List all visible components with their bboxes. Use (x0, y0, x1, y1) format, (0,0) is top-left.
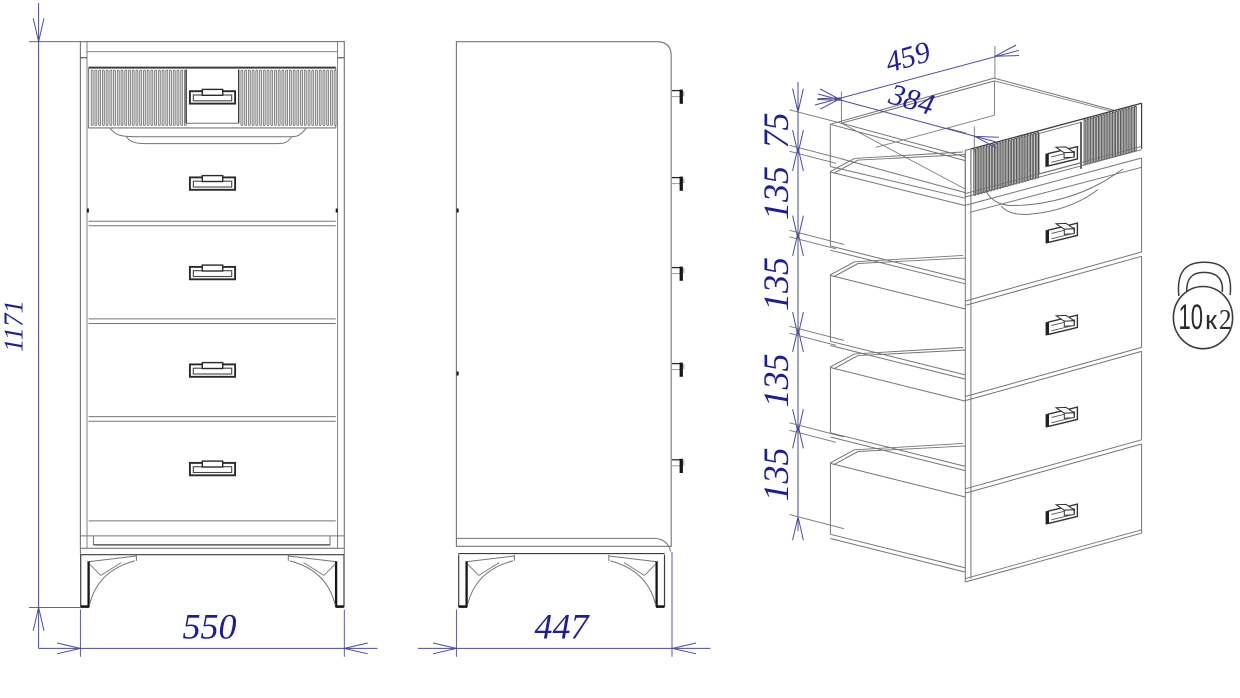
svg-text:135: 135 (756, 448, 796, 502)
svg-text:к: к (1205, 305, 1217, 335)
svg-text:550: 550 (183, 607, 237, 647)
svg-text:1171: 1171 (0, 300, 29, 352)
svg-text:135: 135 (756, 166, 796, 220)
svg-text:10: 10 (1179, 298, 1204, 337)
svg-text:135: 135 (756, 257, 796, 311)
svg-text:135: 135 (756, 354, 796, 408)
svg-text:2: 2 (1219, 305, 1232, 336)
svg-text:447: 447 (535, 607, 591, 647)
svg-text:75: 75 (756, 113, 796, 149)
